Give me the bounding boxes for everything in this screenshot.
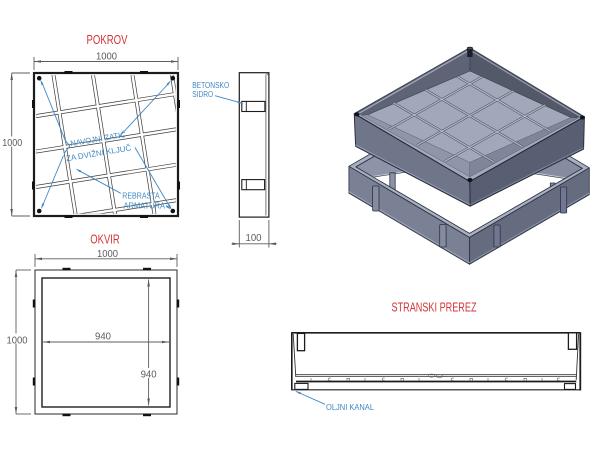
svg-text:1000: 1000 — [96, 52, 117, 63]
svg-text:REBRASTA: REBRASTA — [122, 191, 160, 200]
svg-text:940: 940 — [141, 369, 157, 380]
svg-text:OLJNI KANAL: OLJNI KANAL — [326, 403, 375, 412]
svg-text:STRANSKI PREREZ: STRANSKI PREREZ — [392, 301, 477, 315]
svg-text:SIDRO: SIDRO — [192, 90, 213, 99]
svg-text:1000: 1000 — [7, 335, 28, 346]
svg-text:100: 100 — [246, 233, 262, 244]
svg-text:ARMATURA: ARMATURA — [124, 201, 166, 210]
svg-text:POKROV: POKROV — [87, 33, 128, 47]
svg-text:1000: 1000 — [97, 249, 118, 260]
svg-text:1000: 1000 — [2, 138, 22, 149]
svg-text:OKVIR: OKVIR — [90, 233, 120, 247]
svg-text:940: 940 — [95, 331, 111, 342]
svg-text:BETONSKO: BETONSKO — [192, 81, 229, 90]
